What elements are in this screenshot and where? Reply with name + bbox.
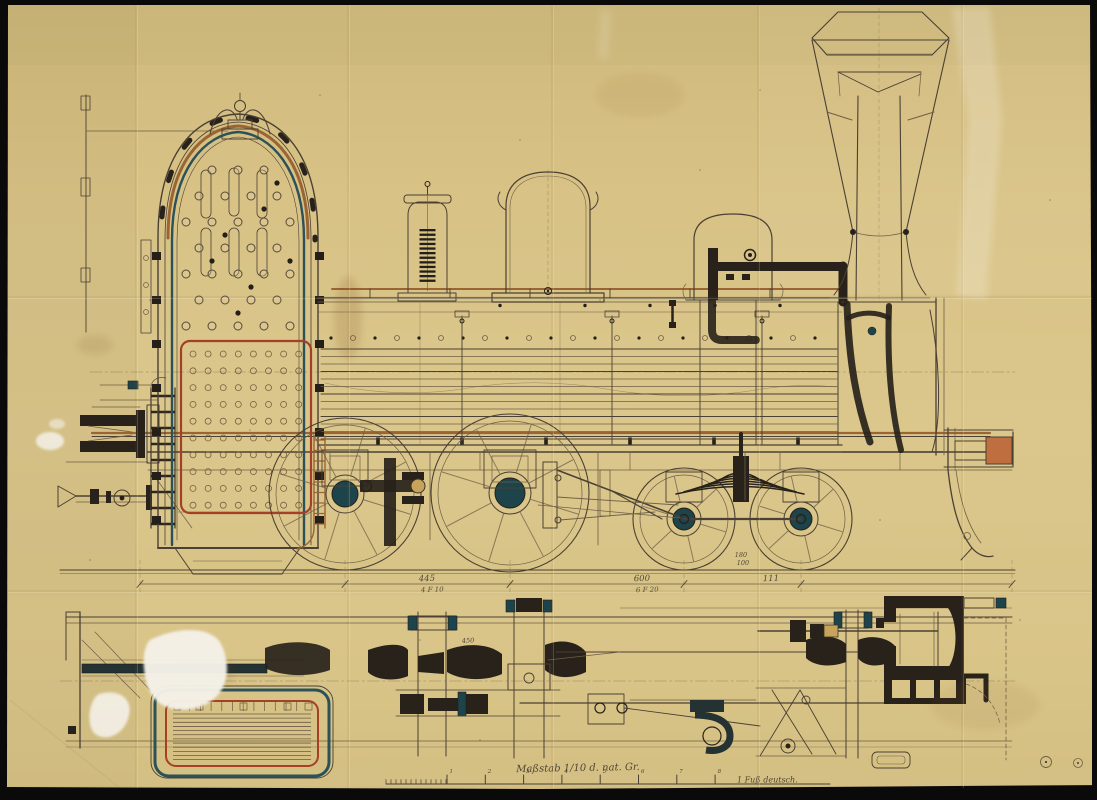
dimension-label-111: 111 <box>763 574 780 585</box>
plan-crosshead <box>400 694 424 714</box>
dimension-label-445: 445 <box>418 574 436 585</box>
scale-caption: Maßstab 1/10 d. nat. Gr. <box>515 762 640 775</box>
scale-unit-label: 1 Fuß deutsch. <box>737 776 798 785</box>
svg-text:4: 4 <box>563 769 568 775</box>
dimension-label-600: 600 <box>634 574 651 585</box>
plan-crank-axle-2 <box>516 598 542 612</box>
svg-text:5: 5 <box>603 769 607 775</box>
svg-text:1: 1 <box>450 769 454 775</box>
svg-text:6: 6 <box>641 769 645 775</box>
svg-text:3: 3 <box>526 769 530 775</box>
svg-text:8: 8 <box>718 769 722 775</box>
dry-pipe <box>718 262 842 271</box>
photo-of-drawing: 445 4 F 10 600 6 F 20 111 180 100 <box>0 0 1097 800</box>
dimension-label-180: 180 <box>735 551 747 559</box>
buffer-pad <box>986 437 1012 464</box>
svg-text:7: 7 <box>679 769 683 775</box>
svg-text:2: 2 <box>487 769 492 775</box>
dimension-sublabel-100: 100 <box>737 559 749 567</box>
plan-dimension-label: 450 <box>461 636 475 645</box>
